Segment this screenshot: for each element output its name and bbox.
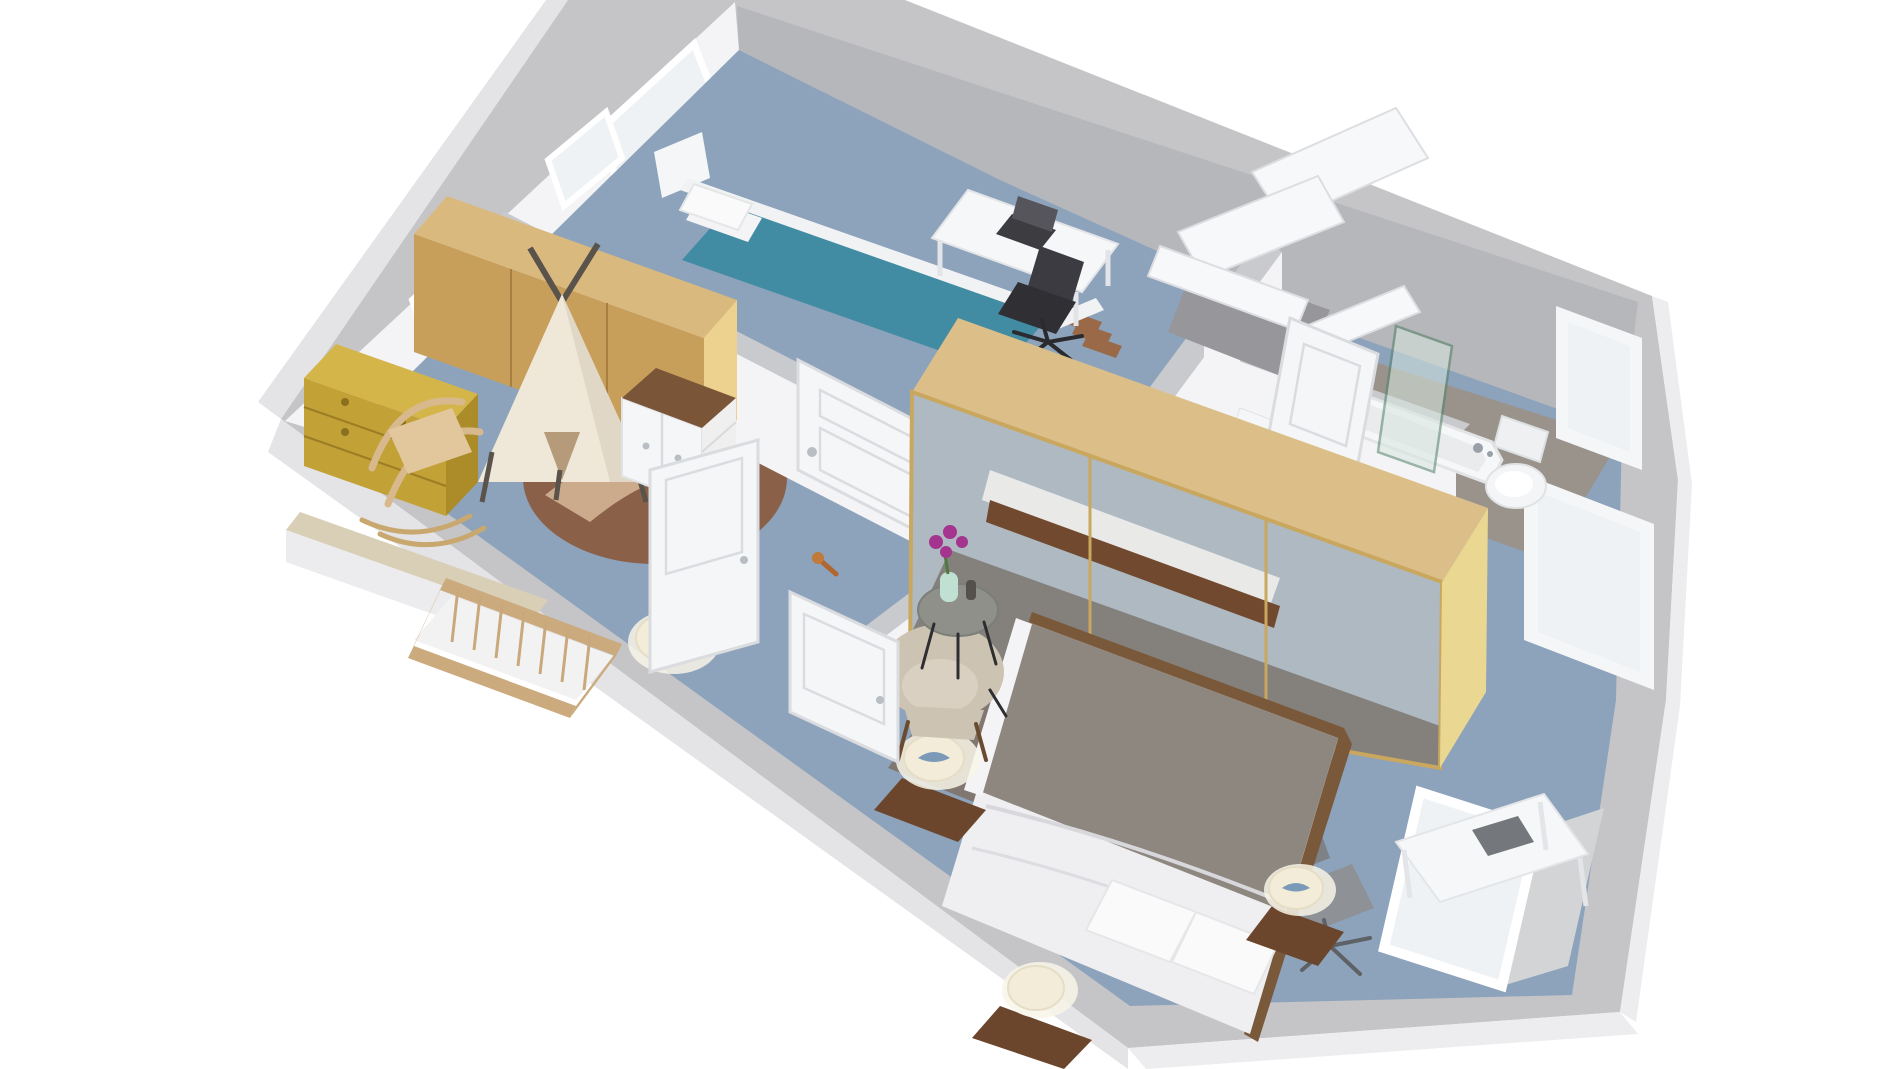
door-handle bbox=[807, 447, 817, 457]
door-nursery-open bbox=[650, 440, 758, 672]
floor-plan-canvas bbox=[0, 0, 1900, 1069]
floor-plan-3d-render bbox=[0, 0, 1900, 1069]
bath-faucet bbox=[1473, 443, 1483, 453]
